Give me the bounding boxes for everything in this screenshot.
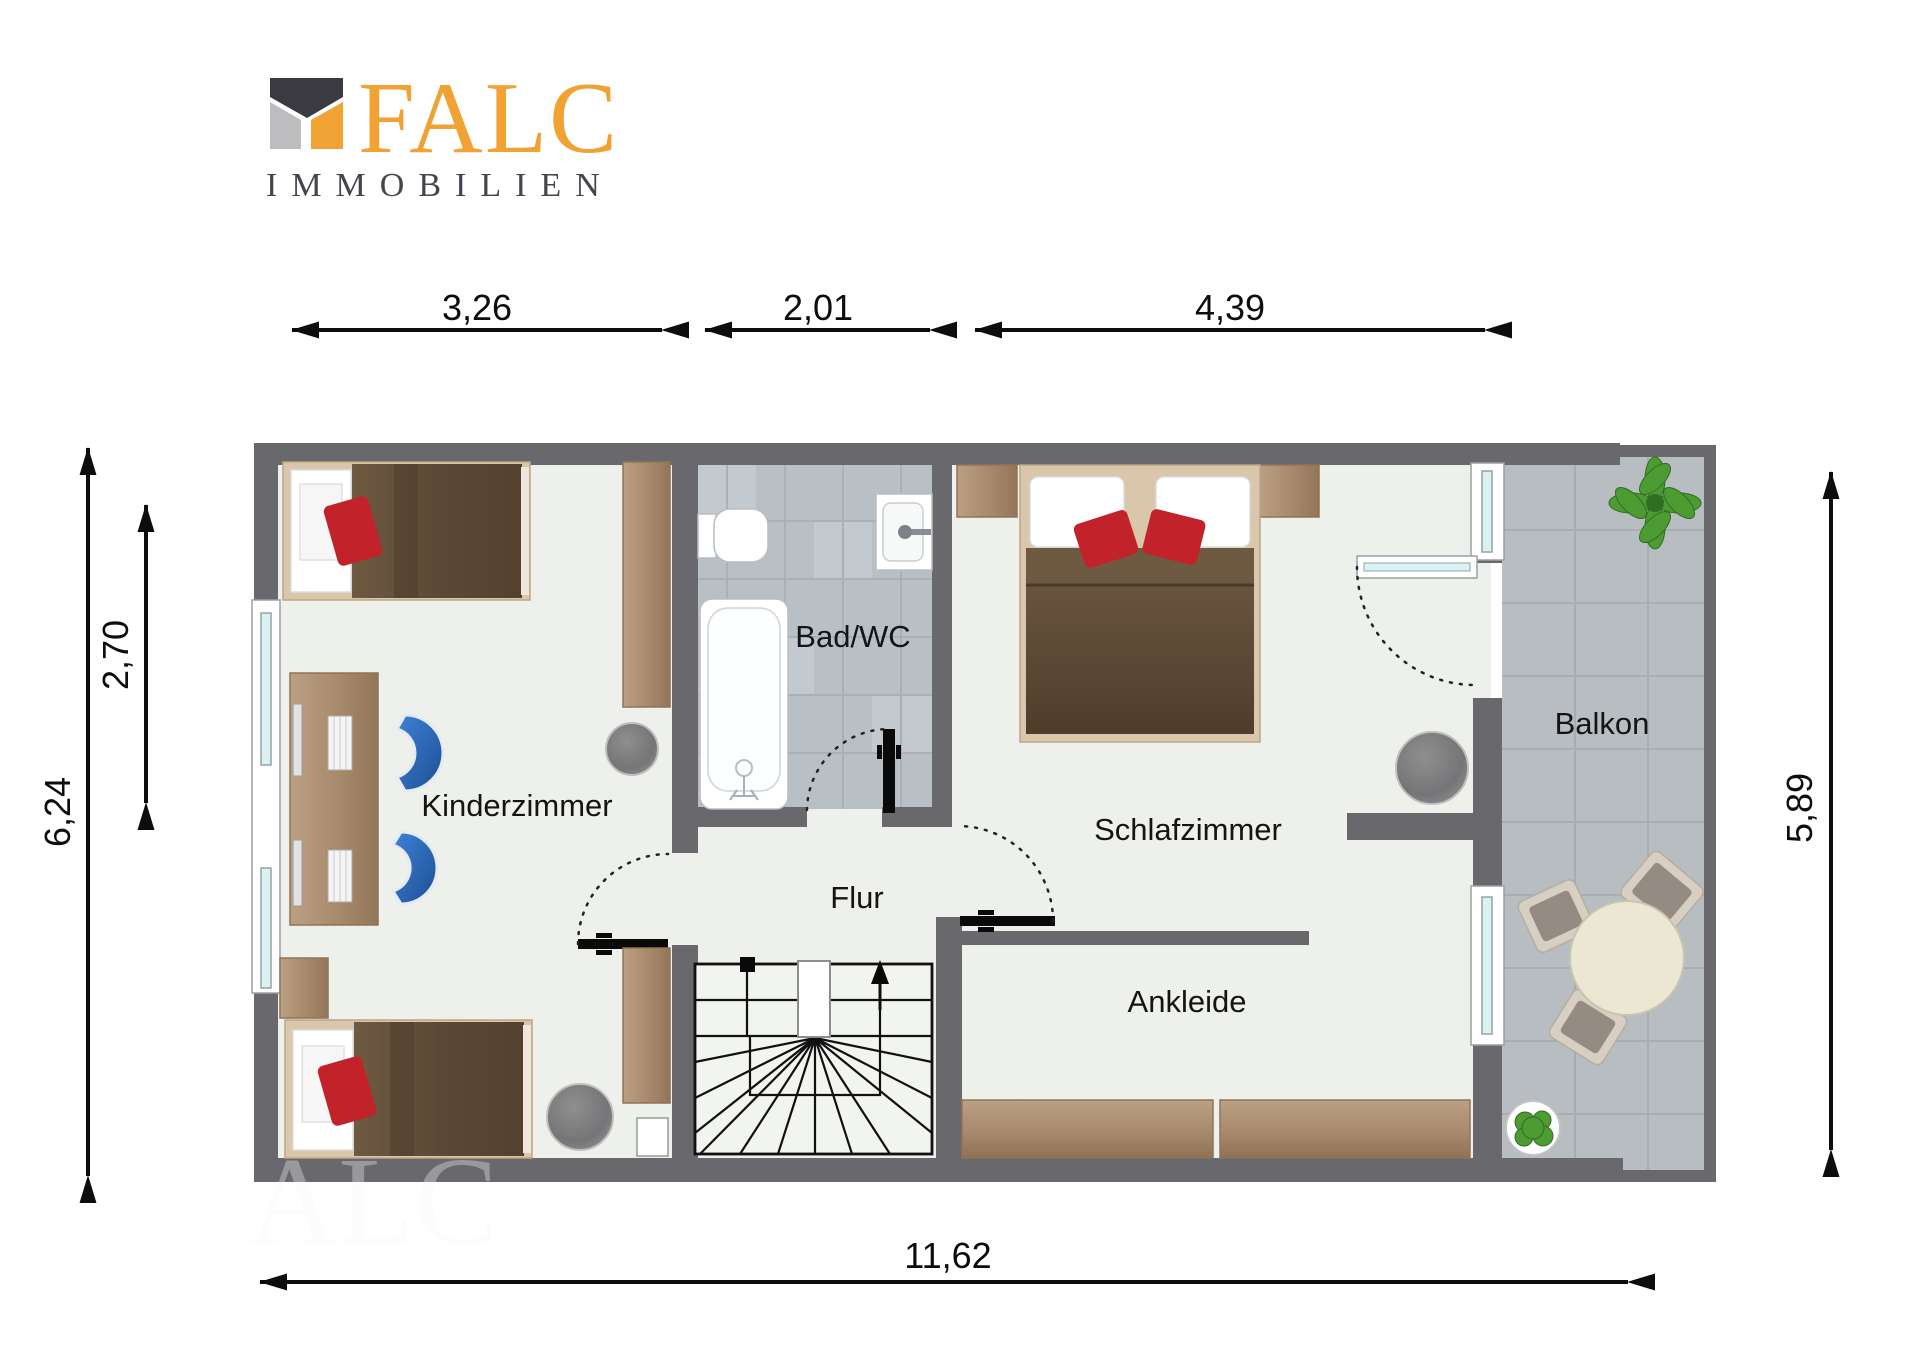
wall-schlafzimmer-ankleide [936,931,1309,945]
wall-bad-schlafzimmer [932,443,952,827]
nightstand-left [957,465,1017,517]
bedroom-chair [1396,732,1468,804]
ankleide-wardrobe-right [1220,1100,1470,1158]
label-bad: Bad/WC [795,619,910,654]
balcony-railing-bottom [1620,1170,1716,1182]
ankleide-window [1471,886,1504,1045]
balcony-table [1570,901,1684,1015]
label-balkon: Balkon [1555,706,1650,741]
dim-bottom: 11,62 [904,1235,991,1276]
toilet [698,509,768,562]
dim-left-partial: 2,70 [95,620,136,690]
label-flur: Flur [830,880,883,915]
wall-niche [637,1118,668,1156]
brand-subtitle: IMMOBILIEN [266,167,614,204]
staircase [695,957,932,1154]
balcony-railing-top [1620,445,1708,457]
wall-bad-bottom-left [698,807,807,827]
beanbag-chair-2 [547,1084,613,1150]
sink [876,494,932,570]
ankleide-wardrobe-left [962,1100,1213,1158]
wall-kinderzimmer-bad [672,443,698,853]
wall-flur-ankleide [936,917,962,1158]
label-ankleide: Ankleide [1128,984,1247,1019]
balcony-plant-bottom [1506,1101,1560,1155]
beanbag-chair-1 [606,723,658,775]
dim-right: 5,89 [1779,773,1820,843]
dim-top-3: 4,39 [1195,287,1265,328]
bathtub [700,599,788,809]
double-bed [1020,465,1260,742]
dim-top-2: 2,01 [783,287,853,328]
single-bed-bottom [285,1020,532,1158]
wardrobe-upper [623,462,670,707]
floorplan-page: FALC IMMOBILIEN ALC [0,0,1920,1357]
bedside-cabinet [280,958,328,1018]
balcony-floor [1502,455,1704,1172]
balcony-railing-right [1704,445,1716,1182]
floorplan-drawing: FALC IMMOBILIEN ALC [0,0,1920,1357]
schlafzimmer-side-window [1471,463,1504,560]
dim-left-overall: 6,24 [37,777,78,847]
brand-name: FALC [358,62,619,175]
nightstand-right [1259,465,1319,517]
desk [290,673,378,925]
wardrobe-lower [623,948,670,1103]
falc-logo: FALC IMMOBILIEN [266,62,619,204]
dim-top-1: 3,26 [442,287,512,328]
label-schlafzimmer: Schlafzimmer [1094,812,1282,847]
label-kinderzimmer: Kinderzimmer [421,788,612,823]
stairs-entry-marker [740,957,755,972]
kinderzimmer-window [252,600,280,993]
single-bed-top [283,462,530,600]
